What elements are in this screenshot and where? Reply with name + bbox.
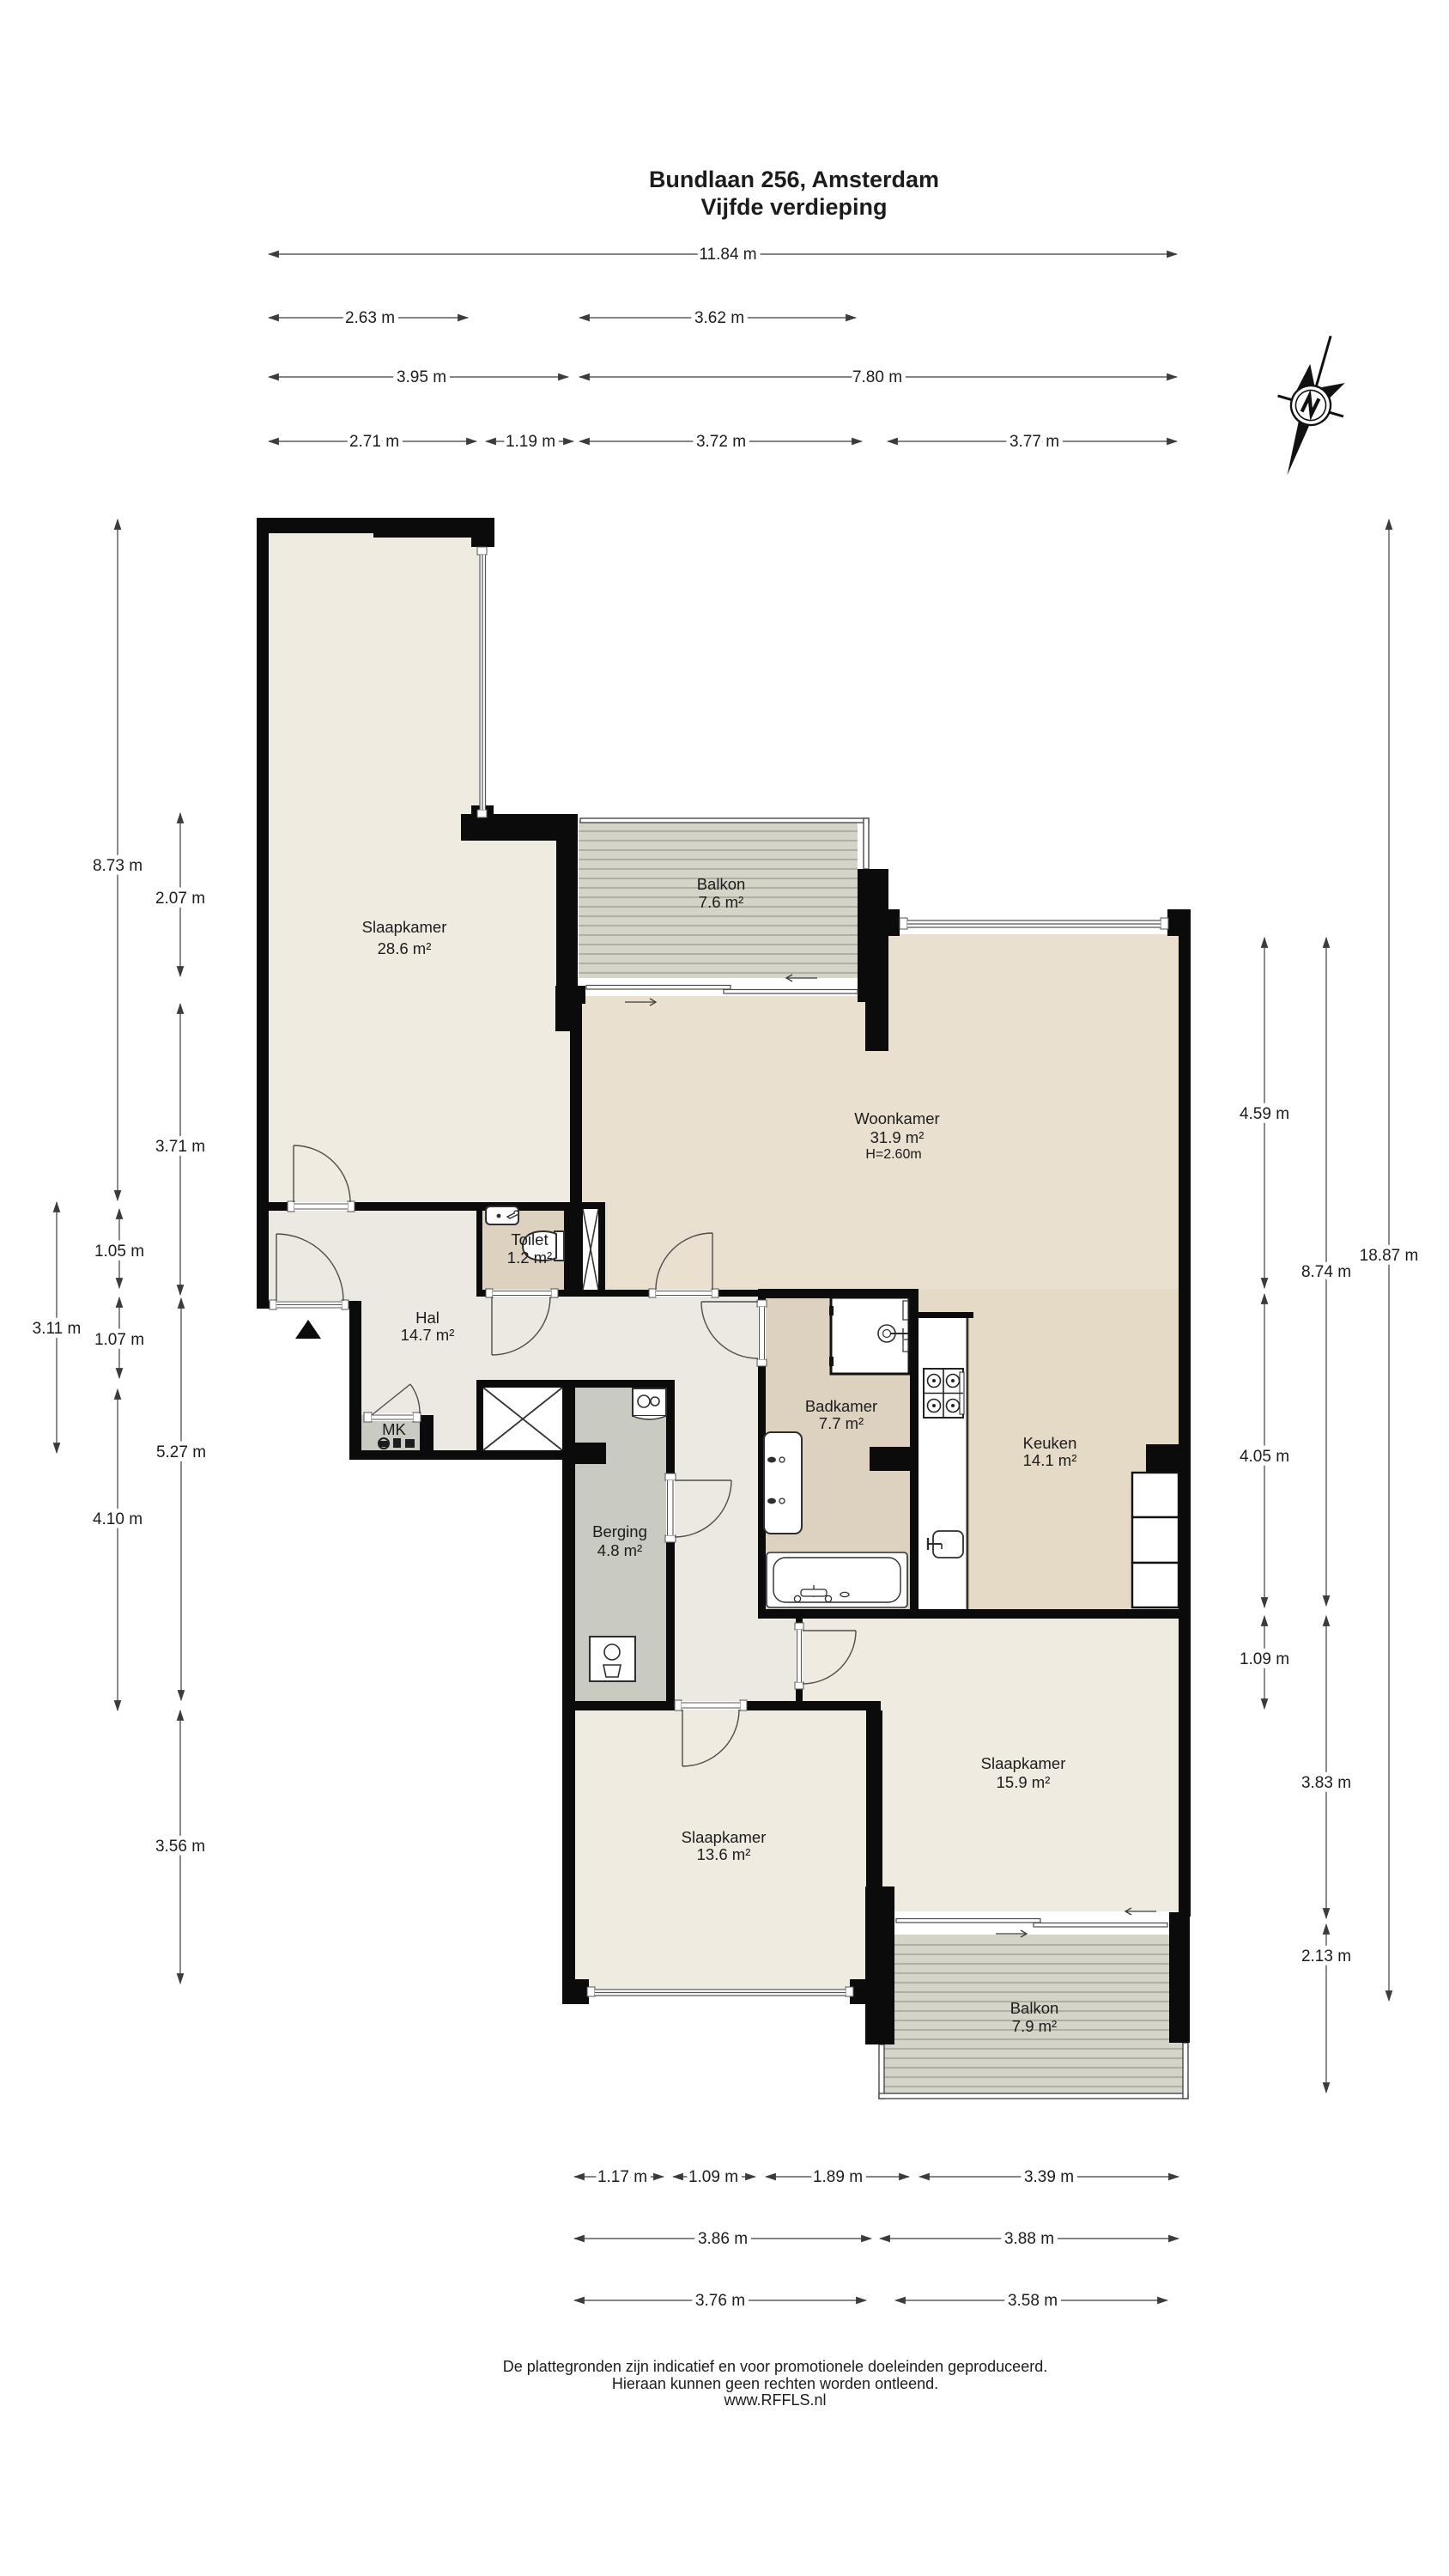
svg-text:Hal: Hal bbox=[415, 1309, 440, 1327]
svg-text:3.72 m: 3.72 m bbox=[696, 433, 746, 451]
svg-text:11.84 m: 11.84 m bbox=[699, 246, 756, 264]
svg-text:7.80 m: 7.80 m bbox=[852, 368, 902, 386]
svg-text:3.88 m: 3.88 m bbox=[1004, 2230, 1054, 2248]
svg-text:1.07 m: 1.07 m bbox=[94, 1331, 144, 1349]
svg-text:Toilet: Toilet bbox=[511, 1230, 548, 1249]
svg-text:1.89 m: 1.89 m bbox=[813, 2168, 863, 2186]
svg-text:Slaapkamer: Slaapkamer bbox=[682, 1828, 767, 1846]
svg-text:7.9 m²: 7.9 m² bbox=[1012, 2017, 1057, 2035]
svg-text:3.62 m: 3.62 m bbox=[694, 309, 744, 327]
svg-text:3.86 m: 3.86 m bbox=[698, 2230, 748, 2248]
svg-text:1.05 m: 1.05 m bbox=[94, 1242, 144, 1261]
svg-text:Hieraan kunnen geen rechten wo: Hieraan kunnen geen rechten worden ontle… bbox=[612, 2375, 938, 2392]
svg-text:Badkamer: Badkamer bbox=[805, 1397, 877, 1415]
svg-text:1.09 m: 1.09 m bbox=[1240, 1650, 1289, 1668]
svg-text:1.09 m: 1.09 m bbox=[688, 2168, 738, 2186]
svg-text:Woonkamer: Woonkamer bbox=[854, 1109, 939, 1127]
svg-text:14.7 m²: 14.7 m² bbox=[401, 1326, 455, 1344]
svg-text:8.74 m: 8.74 m bbox=[1301, 1263, 1351, 1281]
svg-text:2.63 m: 2.63 m bbox=[345, 309, 395, 327]
svg-text:2.71 m: 2.71 m bbox=[349, 433, 399, 451]
svg-text:2.13 m: 2.13 m bbox=[1301, 1947, 1351, 1965]
svg-text:3.77 m: 3.77 m bbox=[1009, 433, 1059, 451]
svg-text:15.9 m²: 15.9 m² bbox=[997, 1773, 1051, 1791]
svg-text:2.07 m: 2.07 m bbox=[155, 890, 205, 908]
svg-text:7.7 m²: 7.7 m² bbox=[819, 1414, 864, 1432]
svg-text:Balkon: Balkon bbox=[697, 875, 746, 893]
svg-text:www.RFFLS.nl: www.RFFLS.nl bbox=[723, 2391, 826, 2409]
svg-text:Vijfde verdieping: Vijfde verdieping bbox=[700, 194, 887, 220]
svg-text:4.05 m: 4.05 m bbox=[1240, 1448, 1289, 1466]
svg-text:3.11 m: 3.11 m bbox=[33, 1320, 82, 1338]
svg-text:7.6 m²: 7.6 m² bbox=[699, 893, 743, 911]
svg-text:Berging: Berging bbox=[592, 1522, 647, 1540]
svg-text:3.76 m: 3.76 m bbox=[695, 2292, 745, 2310]
svg-text:1.17 m: 1.17 m bbox=[597, 2168, 647, 2186]
svg-text:3.71 m: 3.71 m bbox=[155, 1138, 205, 1156]
svg-text:1.2 m²: 1.2 m² bbox=[507, 1249, 552, 1267]
svg-text:Keuken: Keuken bbox=[1023, 1434, 1077, 1452]
svg-text:4.59 m: 4.59 m bbox=[1240, 1105, 1289, 1123]
svg-text:3.83 m: 3.83 m bbox=[1301, 1774, 1351, 1792]
svg-text:13.6 m²: 13.6 m² bbox=[697, 1845, 751, 1863]
svg-text:4.8 m²: 4.8 m² bbox=[597, 1541, 642, 1559]
svg-text:5.27 m: 5.27 m bbox=[156, 1443, 206, 1461]
svg-text:H=2.60m: H=2.60m bbox=[865, 1147, 921, 1162]
svg-text:8.73 m: 8.73 m bbox=[93, 857, 142, 875]
svg-text:28.6 m²: 28.6 m² bbox=[378, 939, 432, 957]
svg-text:De plattegronden zijn indicati: De plattegronden zijn indicatief en voor… bbox=[503, 2358, 1047, 2375]
svg-text:3.58 m: 3.58 m bbox=[1008, 2292, 1058, 2310]
svg-text:18.87 m: 18.87 m bbox=[1360, 1247, 1419, 1265]
svg-text:1.19 m: 1.19 m bbox=[506, 433, 555, 451]
svg-text:14.1 m²: 14.1 m² bbox=[1023, 1451, 1077, 1469]
svg-text:3.39 m: 3.39 m bbox=[1024, 2168, 1074, 2186]
svg-text:MK: MK bbox=[382, 1420, 406, 1438]
svg-text:4.10 m: 4.10 m bbox=[93, 1510, 142, 1528]
svg-text:Slaapkamer: Slaapkamer bbox=[362, 918, 447, 936]
svg-text:3.56 m: 3.56 m bbox=[155, 1838, 205, 1856]
svg-text:Slaapkamer: Slaapkamer bbox=[981, 1754, 1066, 1772]
svg-text:3.95 m: 3.95 m bbox=[397, 368, 446, 386]
svg-text:31.9 m²: 31.9 m² bbox=[870, 1128, 925, 1146]
svg-text:Balkon: Balkon bbox=[1010, 1999, 1059, 2017]
svg-text:Bundlaan 256, Amsterdam: Bundlaan 256, Amsterdam bbox=[649, 167, 939, 192]
